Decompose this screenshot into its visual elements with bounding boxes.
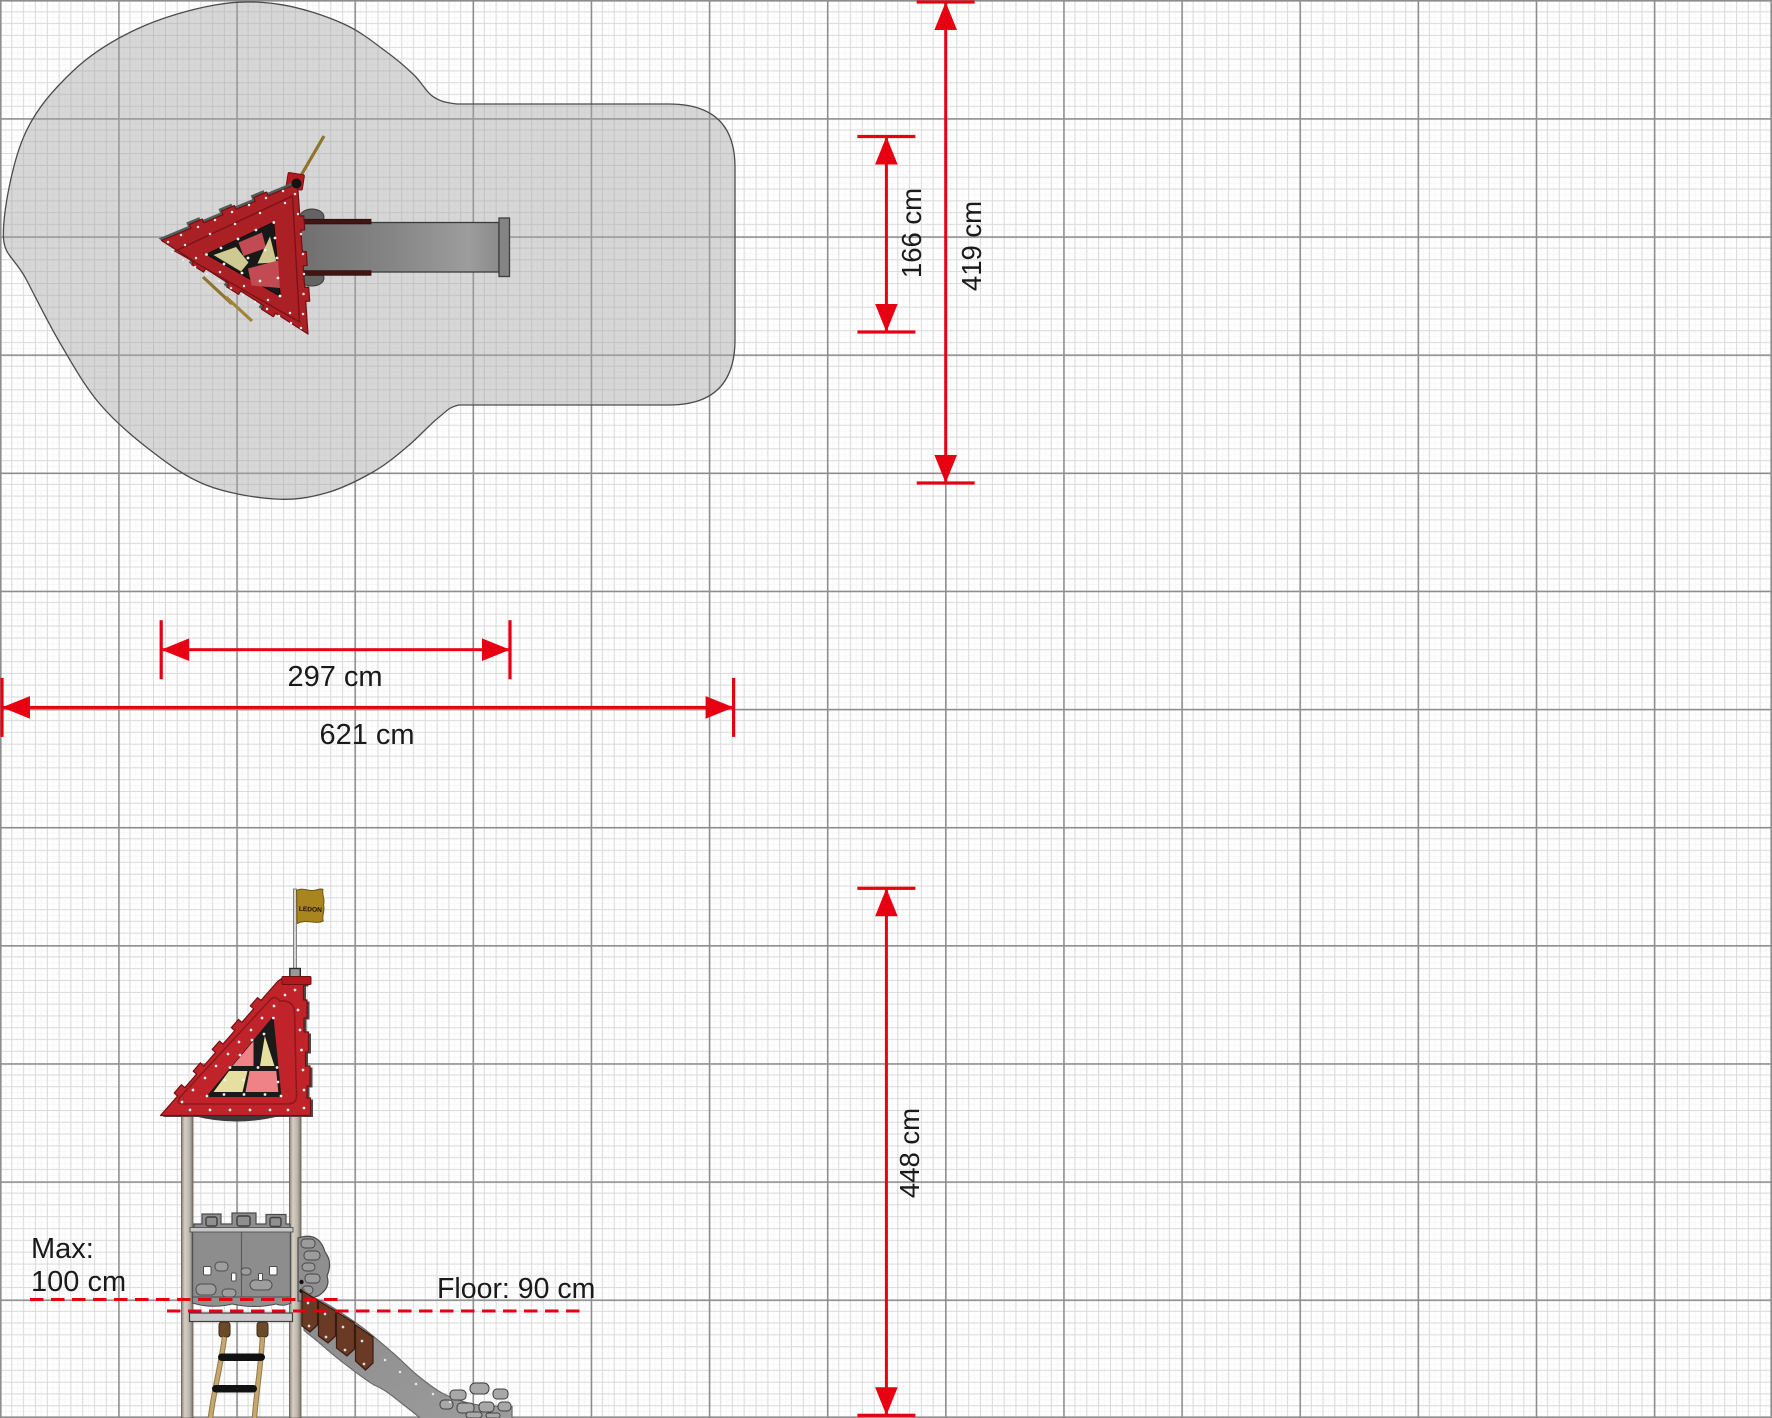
svg-text:Floor: 90 cm: Floor: 90 cm [437,1273,595,1305]
svg-text:166 cm: 166 cm [896,188,927,278]
svg-text:621 cm: 621 cm [319,719,414,751]
svg-text:100 cm: 100 cm [31,1266,126,1298]
svg-text:419 cm: 419 cm [956,201,987,291]
svg-text:LEDON: LEDON [299,906,323,914]
svg-text:297 cm: 297 cm [287,661,382,693]
svg-text:448 cm: 448 cm [894,1108,925,1198]
svg-text:Max:: Max: [31,1233,94,1265]
